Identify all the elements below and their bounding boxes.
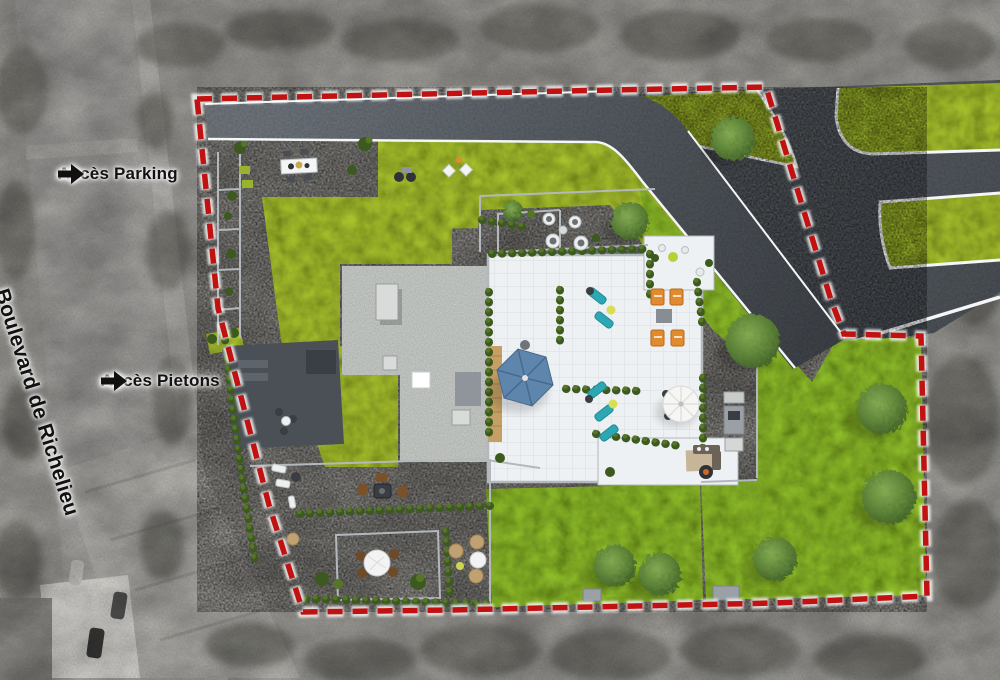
roof-box [452, 410, 470, 425]
planter-lime-1 [239, 166, 250, 174]
roof-vent [383, 356, 397, 370]
planter-lime-2 [242, 180, 253, 188]
skylight [412, 372, 430, 388]
site-plan-image: Accès Parking Accès Pietons Boulevard de… [0, 0, 1000, 680]
tree [503, 201, 523, 221]
terrace-ne [644, 236, 714, 290]
entrance-step-1 [238, 360, 268, 368]
green-island-2 [880, 193, 1000, 268]
entrance-step-2 [238, 373, 268, 381]
green-island-1 [836, 83, 1000, 154]
cube-table [656, 309, 672, 323]
parking-access-label: Accès Parking [58, 164, 178, 184]
chimney [376, 284, 398, 320]
arrow-right-icon [58, 164, 84, 184]
outdoor-kitchen [724, 392, 744, 451]
lawn-pad-2 [713, 586, 739, 600]
roof-pad [455, 372, 481, 406]
parasol-lamp [520, 340, 530, 350]
site-plan-svg [0, 0, 1000, 680]
lawn-pad-1 [583, 589, 601, 601]
pedestrian-access-label: Accès Pietons [101, 371, 220, 391]
arrow-right-icon [101, 371, 127, 391]
entrance-dark-pad [306, 350, 336, 374]
